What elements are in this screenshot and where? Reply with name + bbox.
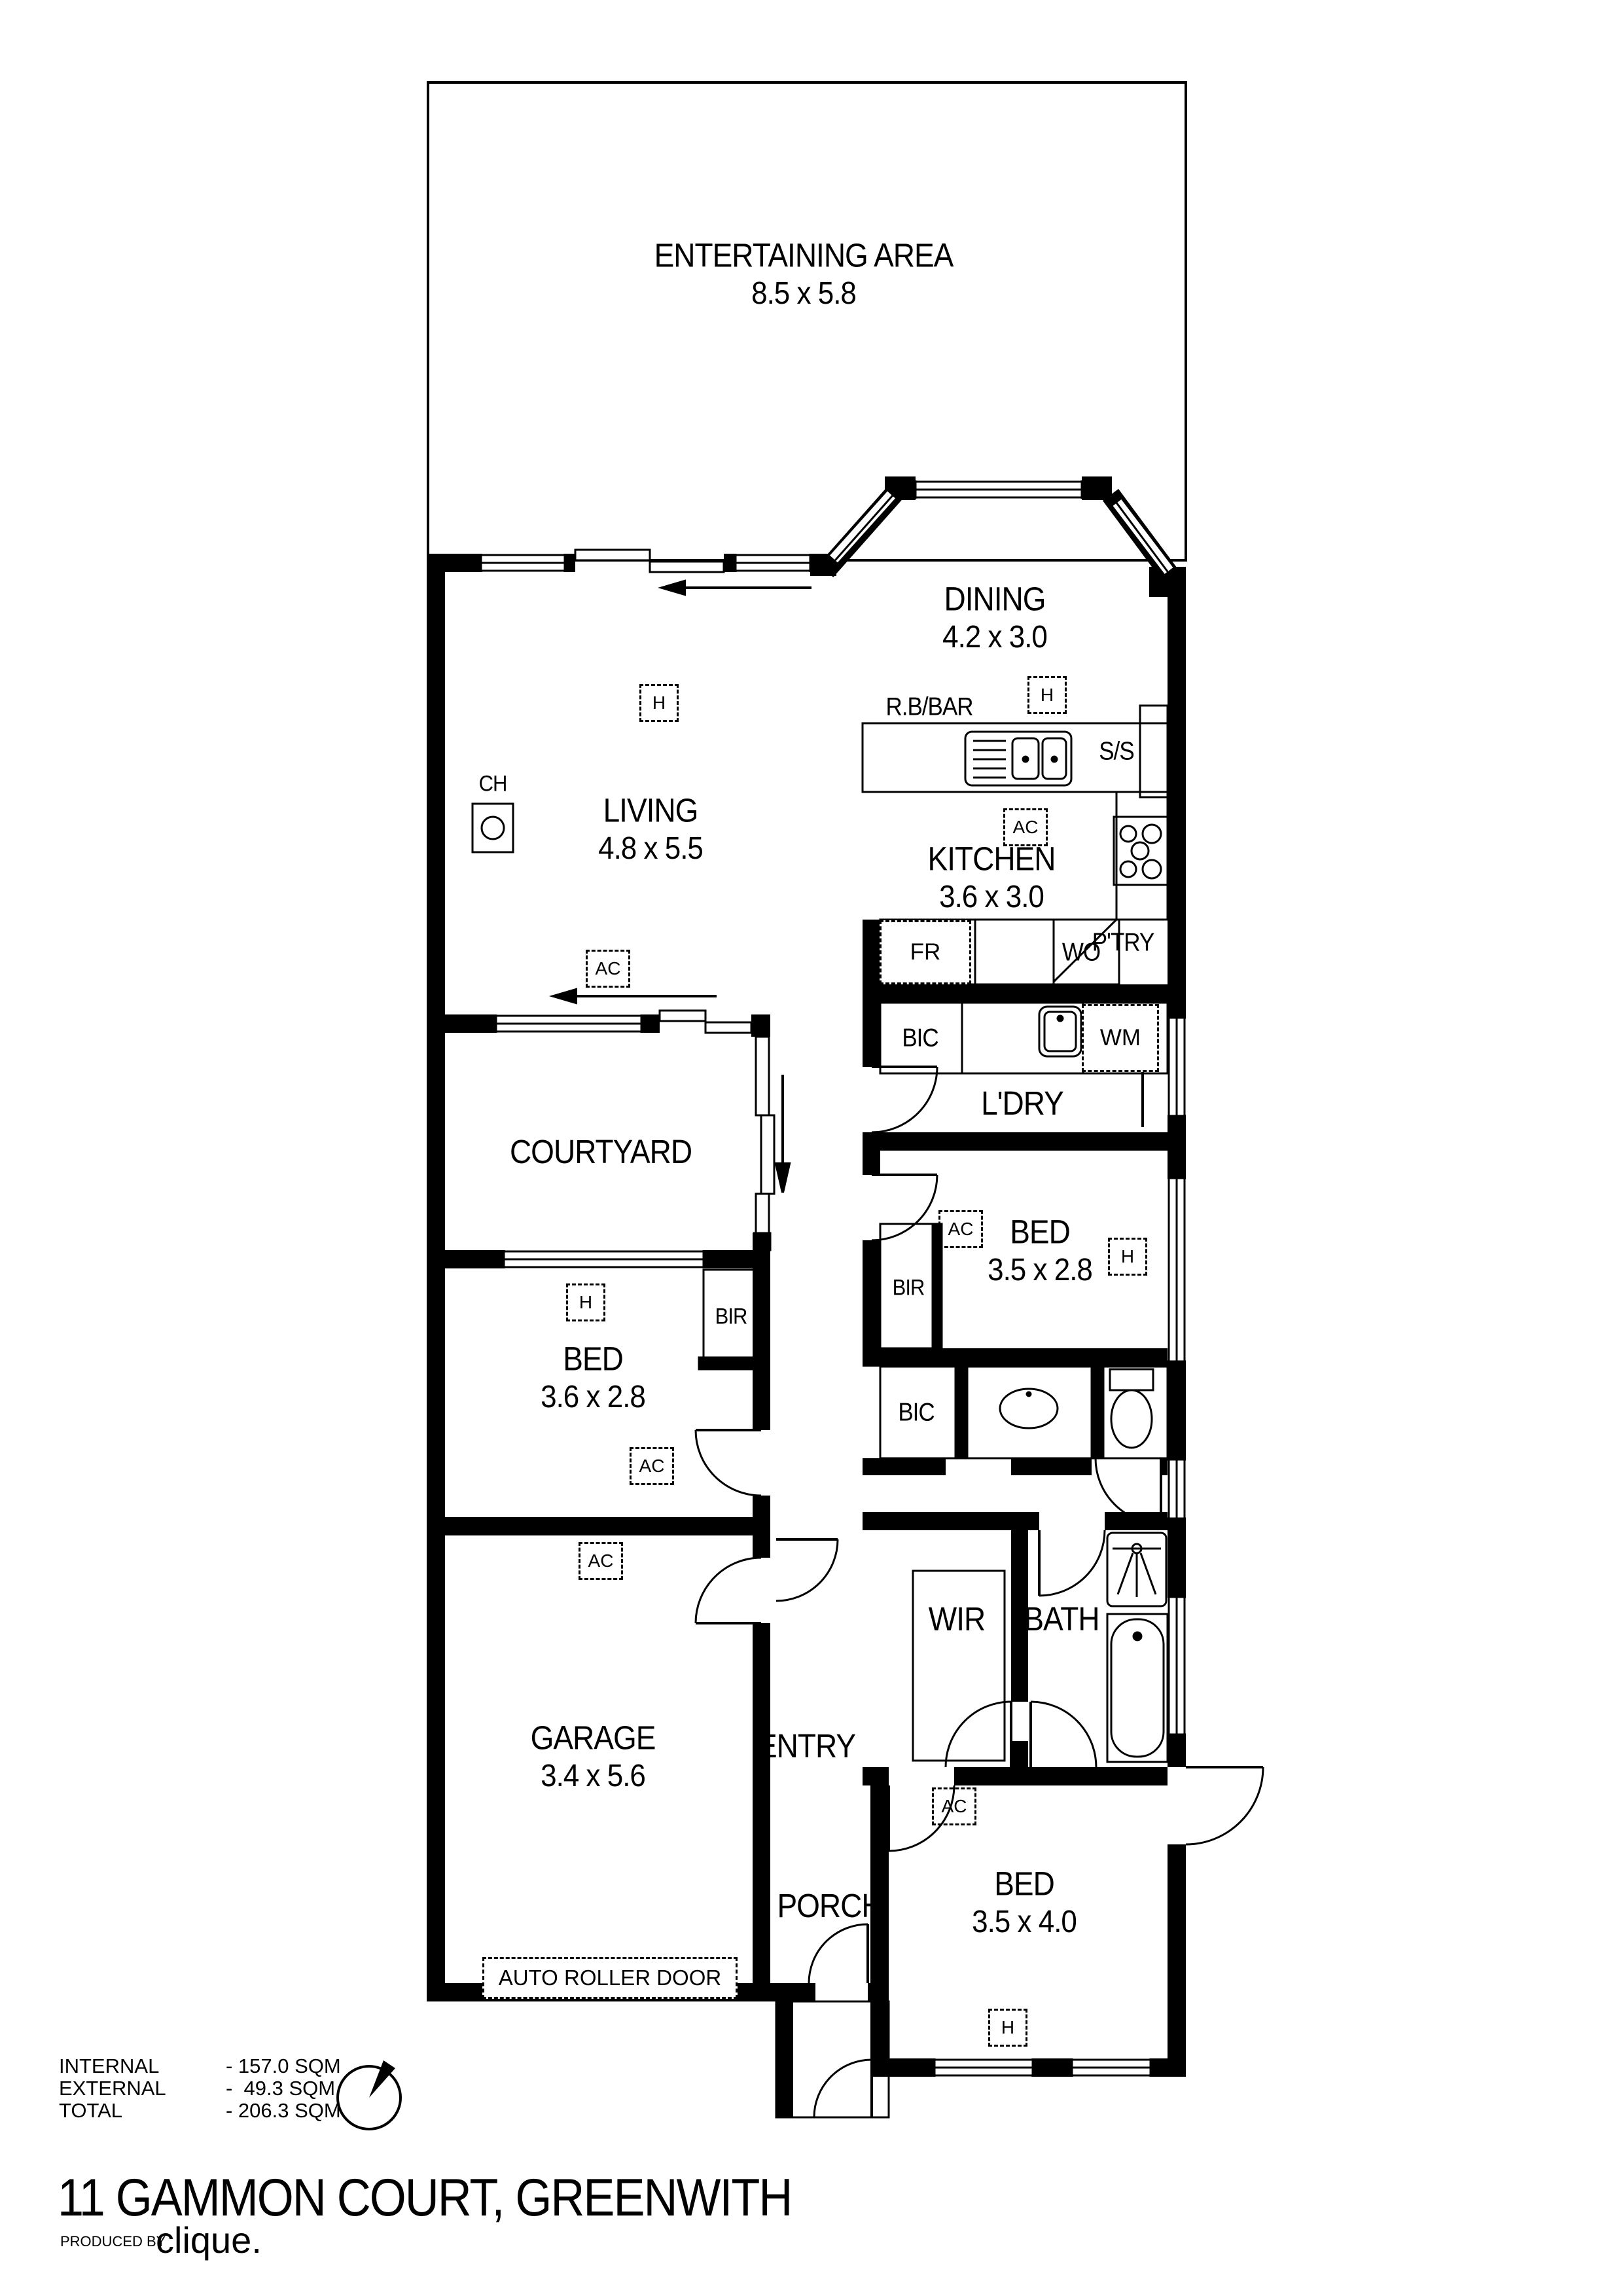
ac-symbol-kitchen: AC — [1003, 808, 1048, 846]
laundry-sink — [1039, 1007, 1081, 1056]
area-summary: INTERNAL- 157.0 SQM EXTERNAL- 49.3 SQM T… — [59, 2055, 341, 2122]
room-garage-name: GARAGE — [531, 1720, 656, 1757]
room-bed3-dims: 3.6 x 2.8 — [541, 1378, 645, 1416]
kitchen-sink — [965, 732, 1071, 785]
auto-roller-door-label: AUTO ROLLER DOOR — [499, 1965, 721, 1990]
heating-symbol-living: H — [639, 684, 679, 722]
room-kitchen-dims: 3.6 x 3.0 — [928, 878, 1056, 916]
pantry-label: P'TRY — [1092, 928, 1154, 956]
area-total-value: - 206.3 SQM — [226, 2099, 341, 2123]
ac-symbol-bed3: AC — [630, 1447, 674, 1485]
ch-label: CH — [479, 772, 507, 797]
shower — [1107, 1533, 1166, 1606]
ac-label: AC — [942, 1796, 967, 1817]
area-row-internal: INTERNAL- 157.0 SQM — [59, 2055, 341, 2077]
room-laundry-name: L'DRY — [981, 1085, 1063, 1122]
room-dining-dims: 4.2 x 3.0 — [942, 618, 1047, 656]
room-bed2-dims: 3.5 x 2.8 — [988, 1251, 1092, 1289]
courtyard-screen — [754, 1037, 774, 1250]
floorplan-graphics — [0, 0, 1623, 2296]
room-bath-name: BATH — [1024, 1601, 1099, 1638]
ch-hot-water-unit — [473, 804, 513, 852]
rbbar-label: R.B/BAR — [885, 692, 972, 721]
area-external-label: EXTERNAL — [59, 2077, 226, 2100]
room-porch-name: PORCH — [777, 1888, 882, 1925]
heating-symbol-bed4: H — [988, 2009, 1027, 2047]
heating-label: H — [579, 1292, 592, 1313]
area-row-external: EXTERNAL- 49.3 SQM — [59, 2077, 341, 2100]
room-bed3-name: BED — [541, 1341, 645, 1378]
area-internal-value: - 157.0 SQM — [226, 2054, 341, 2078]
ac-symbol-bed4: AC — [932, 1787, 976, 1825]
area-row-total: TOTAL- 206.3 SQM — [59, 2100, 341, 2122]
room-wir-name: WIR — [929, 1601, 985, 1638]
room-courtyard-name: COURTYARD — [510, 1134, 692, 1171]
room-bed4: BED 3.5 x 4.0 — [972, 1866, 1077, 1941]
ac-label: AC — [639, 1456, 665, 1477]
ac-label: AC — [1013, 817, 1039, 838]
fridge-box: FR — [880, 920, 971, 984]
room-entertaining: ENTERTAINING AREA 8.5 x 5.8 — [650, 238, 957, 313]
ac-symbol-garage: AC — [579, 1542, 623, 1580]
wm-box: WM — [1082, 1004, 1159, 1072]
heating-label: H — [1041, 685, 1054, 706]
ac-label: AC — [948, 1219, 974, 1240]
bir-bed3-label: BIR — [715, 1304, 747, 1329]
heating-symbol-dining: H — [1027, 676, 1067, 714]
room-bed4-dims: 3.5 x 4.0 — [972, 1903, 1077, 1941]
area-total-label: TOTAL — [59, 2099, 226, 2123]
room-garage-dims: 3.4 x 5.6 — [531, 1757, 656, 1795]
room-entertaining-name: ENTERTAINING AREA — [650, 238, 957, 275]
room-entertaining-dims: 8.5 x 5.8 — [650, 274, 957, 312]
room-bed2-name: BED — [988, 1214, 1092, 1251]
room-garage: GARAGE 3.4 x 5.6 — [531, 1720, 656, 1795]
room-bed3: BED 3.6 x 2.8 — [541, 1341, 645, 1416]
vanity-basin — [1000, 1389, 1058, 1428]
cooktop — [1120, 825, 1161, 878]
area-external-value: - 49.3 SQM — [226, 2077, 335, 2100]
fridge-label: FR — [910, 939, 941, 965]
auto-roller-door-box: AUTO ROLLER DOOR — [482, 1957, 738, 1999]
room-bed2: BED 3.5 x 2.8 — [988, 1214, 1092, 1289]
toilet — [1110, 1369, 1153, 1448]
heating-label: H — [652, 692, 666, 713]
heating-label: H — [1121, 1246, 1134, 1267]
heating-symbol-bed3: H — [566, 1283, 605, 1321]
bir-bed2-label: BIR — [893, 1276, 925, 1300]
compass — [338, 2060, 401, 2129]
room-entry-name: ENTRY — [757, 1728, 855, 1765]
floorplan: ENTERTAINING AREA 8.5 x 5.8 DINING 4.2 x… — [0, 0, 1623, 2296]
bay-window-walls — [826, 490, 1173, 579]
area-internal-label: INTERNAL — [59, 2054, 226, 2078]
room-kitchen-name: KITCHEN — [928, 841, 1056, 878]
ac-symbol-bed2: AC — [938, 1210, 983, 1248]
ac-label: AC — [596, 958, 621, 979]
heating-symbol-bed2: H — [1108, 1238, 1147, 1276]
clique-logo: clique. — [156, 2219, 262, 2261]
bic-hall-label: BIC — [898, 1398, 934, 1426]
produced-by-label: PRODUCED BY — [60, 2233, 166, 2250]
ac-label: AC — [588, 1551, 614, 1571]
bathtub — [1107, 1614, 1168, 1762]
room-living: LIVING 4.8 x 5.5 — [598, 793, 703, 868]
ac-symbol-living: AC — [586, 950, 630, 988]
room-dining-name: DINING — [942, 581, 1047, 619]
room-living-dims: 4.8 x 5.5 — [598, 829, 703, 867]
bic-laundry-label: BIC — [902, 1024, 938, 1052]
wm-label: WM — [1100, 1025, 1141, 1051]
room-kitchen: KITCHEN 3.6 x 3.0 — [928, 841, 1056, 916]
ss-label: S/S — [1099, 737, 1133, 765]
room-bed4-name: BED — [972, 1866, 1077, 1903]
heating-label: H — [1001, 2017, 1014, 2038]
room-dining: DINING 4.2 x 3.0 — [942, 581, 1047, 656]
room-living-name: LIVING — [598, 793, 703, 830]
